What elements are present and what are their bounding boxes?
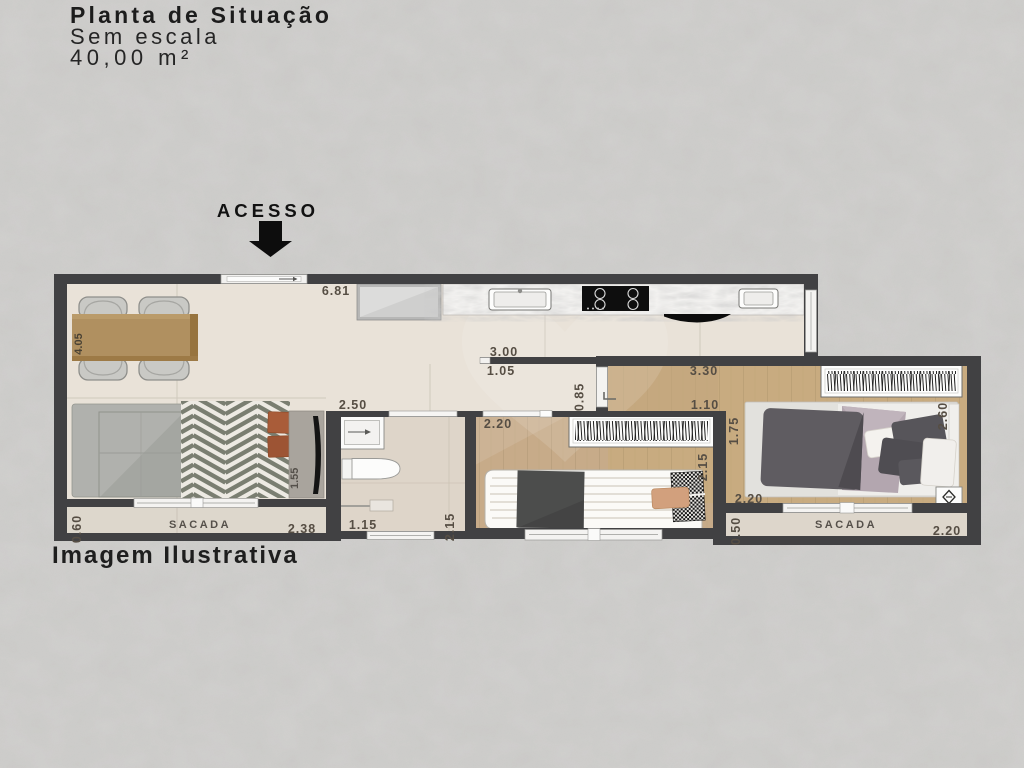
svg-text:SACADA: SACADA: [169, 519, 231, 531]
svg-text:2.60: 2.60: [936, 402, 950, 430]
svg-text:SACADA: SACADA: [815, 519, 877, 531]
svg-text:1.55: 1.55: [289, 468, 301, 489]
svg-text:1.75: 1.75: [727, 417, 741, 445]
svg-text:3.00: 3.00: [490, 345, 518, 359]
svg-text:2.20: 2.20: [933, 524, 961, 538]
svg-text:ACESSO: ACESSO: [217, 200, 319, 221]
svg-text:2.20: 2.20: [484, 417, 512, 431]
svg-text:0.60: 0.60: [70, 515, 84, 543]
svg-text:2.15: 2.15: [696, 453, 710, 481]
svg-text:Imagem Ilustrativa: Imagem Ilustrativa: [52, 542, 299, 569]
svg-text:3.30: 3.30: [690, 364, 718, 378]
svg-text:0.50: 0.50: [729, 517, 743, 545]
svg-text:1.05: 1.05: [487, 364, 515, 378]
svg-text:2.50: 2.50: [339, 398, 367, 412]
svg-text:2.20: 2.20: [735, 492, 763, 506]
svg-text:1.15: 1.15: [349, 518, 377, 532]
svg-text:2.38: 2.38: [288, 522, 316, 536]
svg-text:4.05: 4.05: [73, 333, 85, 354]
svg-text:6.81: 6.81: [322, 284, 350, 298]
svg-text:2.15: 2.15: [443, 513, 457, 541]
svg-text:1.10: 1.10: [691, 398, 719, 412]
svg-text:0.85: 0.85: [573, 383, 587, 411]
svg-text:40,00 m²: 40,00 m²: [70, 45, 193, 70]
